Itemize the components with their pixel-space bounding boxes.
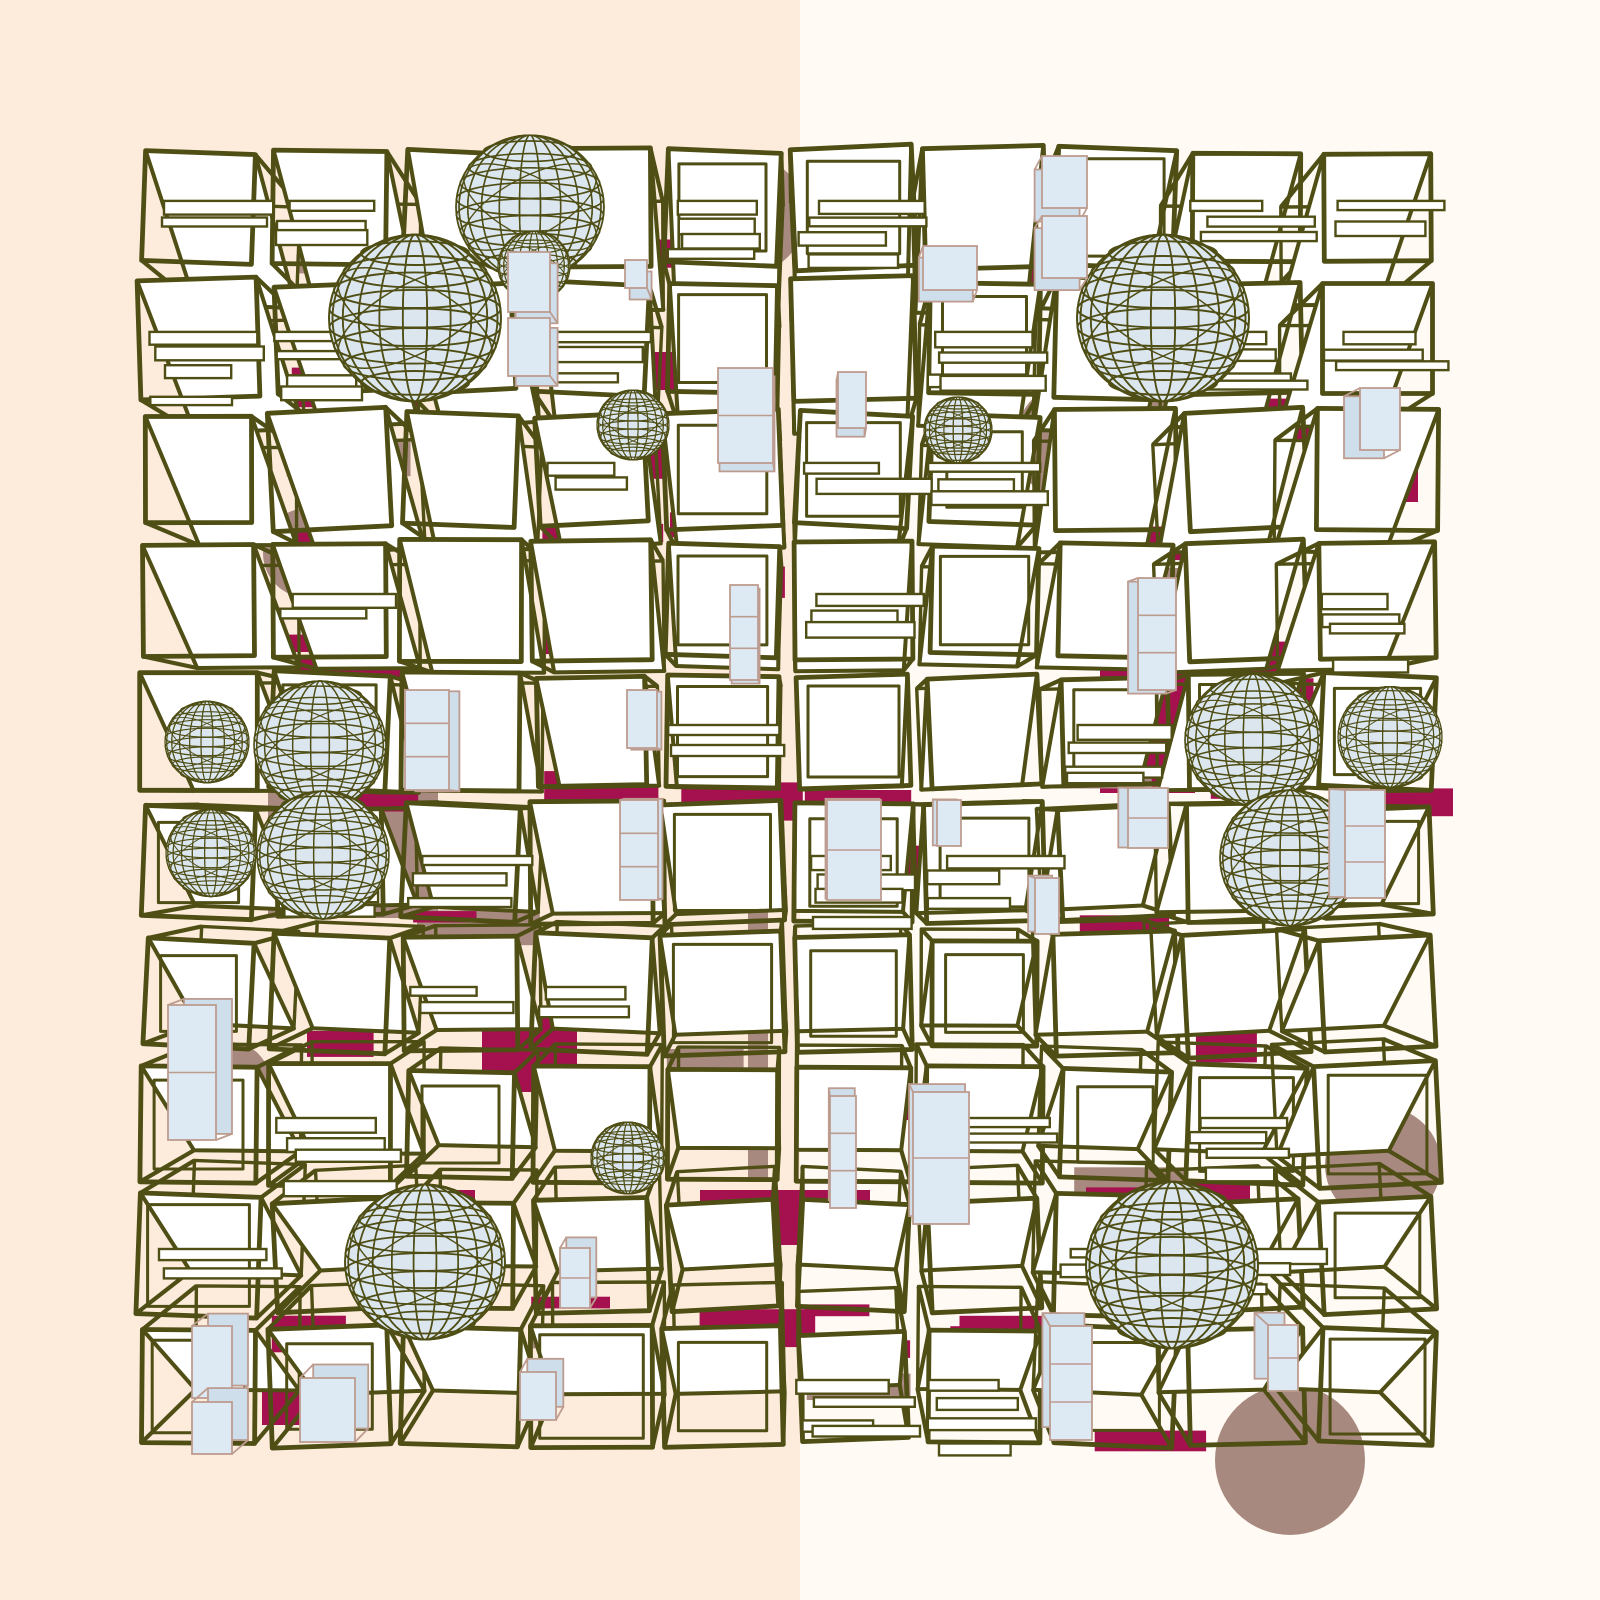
white-slat — [1336, 361, 1448, 370]
white-slat — [814, 1397, 915, 1407]
white-slat — [1190, 1132, 1267, 1143]
white-slat — [422, 856, 532, 865]
white-slat — [941, 376, 1046, 391]
white-card-face — [660, 800, 786, 914]
blue-box — [560, 1237, 596, 1308]
blue-box — [1118, 788, 1168, 849]
white-slat — [813, 1426, 920, 1437]
blue-box — [1344, 388, 1400, 458]
white-slat — [671, 745, 784, 756]
white-slat — [1336, 222, 1426, 237]
generative-artwork-stage — [0, 0, 1600, 1600]
white-slat — [150, 397, 232, 405]
blue-box — [1128, 578, 1176, 694]
wireframe-cube — [919, 546, 1039, 666]
white-slat — [413, 873, 507, 885]
wireframe-cube — [665, 543, 781, 669]
white-slat — [928, 898, 1010, 909]
blue-box — [829, 1088, 856, 1208]
blue-box — [909, 1084, 969, 1224]
white-slat — [277, 351, 346, 359]
blue-box — [508, 252, 558, 323]
white-slat — [668, 725, 779, 735]
white-slat — [552, 373, 618, 382]
white-slat — [935, 332, 1032, 347]
white-slat — [929, 1380, 999, 1391]
white-slat — [809, 254, 898, 268]
white-slat — [164, 201, 273, 215]
white-slat — [809, 218, 926, 227]
white-slat — [819, 201, 925, 214]
white-slat — [937, 1398, 1018, 1410]
white-slat — [947, 856, 1064, 868]
white-slat — [1078, 725, 1172, 740]
white-slat — [799, 232, 886, 245]
white-slat — [280, 609, 366, 619]
blue-box — [933, 799, 961, 846]
white-slat — [816, 594, 923, 606]
white-slat — [928, 1418, 1036, 1430]
wireframe-cube — [660, 800, 786, 925]
white-slat — [1207, 1149, 1289, 1158]
white-slat — [1338, 201, 1445, 210]
white-card-face — [531, 540, 665, 673]
white-card-face — [666, 1199, 780, 1269]
white-slat — [293, 594, 396, 608]
white-slat — [1069, 743, 1167, 753]
white-slat — [162, 218, 267, 227]
blue-box — [405, 690, 459, 791]
blue-box — [168, 999, 232, 1140]
blue-box — [1028, 876, 1059, 934]
white-slat — [796, 1380, 888, 1394]
white-slat — [679, 219, 755, 235]
white-card-face — [660, 931, 786, 1035]
blue-box — [1042, 1313, 1092, 1440]
white-slat — [804, 463, 879, 474]
white-slat — [1333, 660, 1408, 673]
white-slat — [1201, 232, 1317, 241]
blue-box — [620, 799, 663, 900]
white-slat — [939, 353, 1047, 363]
white-slat — [928, 463, 1040, 472]
white-slat — [1201, 1118, 1288, 1128]
white-slat — [811, 611, 897, 623]
white-slat — [164, 1268, 282, 1278]
white-slat — [1324, 350, 1423, 361]
white-slat — [420, 1002, 513, 1013]
white-card-face — [796, 674, 907, 790]
white-slat — [1344, 332, 1416, 344]
white-slat — [150, 332, 258, 345]
white-slat — [817, 479, 932, 494]
white-slat — [408, 898, 511, 907]
white-slat — [1190, 201, 1262, 211]
white-slat — [276, 1118, 376, 1133]
white-slat — [1207, 217, 1314, 227]
blue-box — [520, 1359, 563, 1420]
white-slat — [556, 477, 627, 489]
blue-box — [919, 246, 977, 302]
white-slat — [155, 347, 263, 361]
blue-box — [1035, 216, 1087, 290]
white-slat — [668, 249, 754, 259]
white-slat — [1067, 773, 1143, 783]
blue-box — [730, 585, 760, 684]
white-slat — [678, 201, 757, 215]
white-card-face — [919, 546, 1039, 666]
generative-artwork — [0, 0, 1600, 1600]
wireframe-cube — [796, 674, 911, 790]
white-card-face — [668, 1069, 779, 1148]
white-slat — [296, 1150, 401, 1162]
blue-box — [837, 372, 867, 437]
white-slat — [284, 1181, 397, 1196]
white-slat — [290, 201, 375, 211]
white-slat — [276, 230, 367, 245]
white-card-face — [669, 543, 780, 669]
white-slat — [539, 1007, 629, 1018]
white-slat — [165, 365, 231, 378]
white-slat — [938, 479, 1014, 491]
white-slat — [281, 387, 362, 401]
blue-box — [508, 318, 558, 386]
white-slat — [159, 1249, 266, 1260]
white-slat — [1206, 1168, 1274, 1182]
white-slat — [554, 332, 651, 342]
white-card-face — [798, 1199, 910, 1269]
white-slat — [931, 491, 1047, 505]
blue-box — [625, 260, 652, 300]
wireframe-cube — [531, 540, 665, 673]
white-slat — [546, 987, 626, 999]
white-slat — [1322, 594, 1388, 609]
blue-box — [826, 799, 882, 900]
blue-box — [1035, 156, 1087, 222]
blue-box — [192, 1314, 248, 1398]
blue-box — [627, 690, 661, 750]
wireframe-cube — [917, 674, 1042, 790]
blue-box — [1255, 1313, 1299, 1391]
white-slat — [410, 987, 476, 996]
white-slat — [939, 1444, 1011, 1456]
white-slat — [813, 917, 912, 929]
blue-box — [1329, 789, 1385, 898]
white-card-face — [921, 674, 1037, 790]
white-slat — [806, 622, 914, 638]
white-card-face — [534, 1198, 662, 1272]
white-slat — [682, 234, 760, 249]
white-slat — [1330, 624, 1404, 634]
white-slat — [927, 871, 999, 885]
white-slat — [548, 463, 615, 476]
blue-box — [718, 368, 775, 471]
